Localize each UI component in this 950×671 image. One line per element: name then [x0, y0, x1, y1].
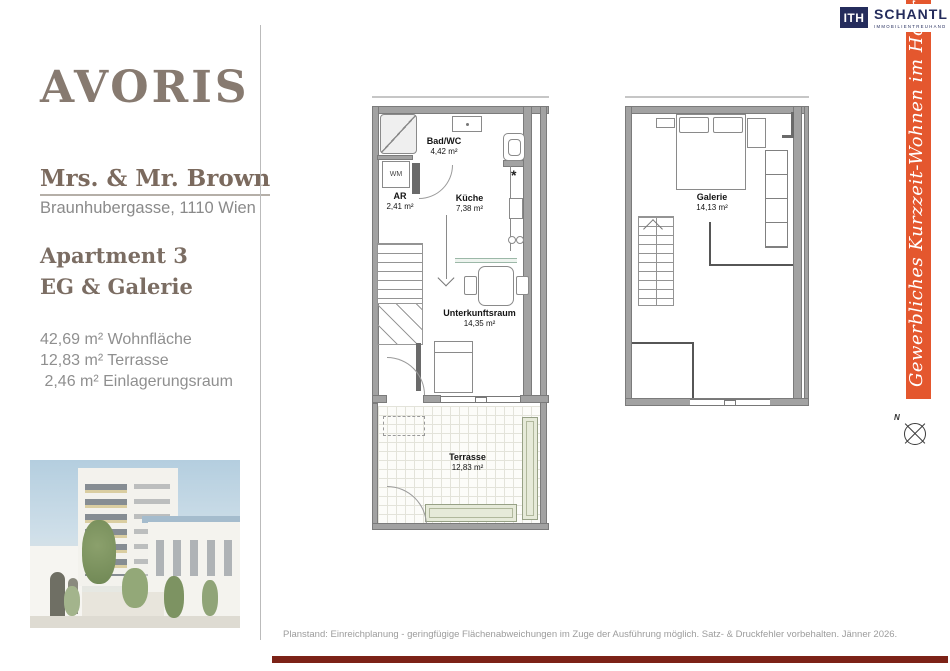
planter — [425, 504, 517, 522]
nightstand-icon — [656, 118, 675, 128]
partner-company: SCHANTL — [874, 7, 948, 21]
north-label: N — [894, 413, 900, 422]
building-rendering-image — [30, 460, 240, 628]
avoris-logo: AVORIS — [40, 62, 250, 113]
area-summary: 42,69 m² Wohnfläche 12,83 m² Terrasse 2,… — [40, 329, 233, 392]
shower-icon — [380, 114, 417, 154]
level-title: EG & Galerie — [40, 274, 193, 299]
pillow-icon — [713, 117, 743, 133]
partner-tagline: IMMOBILIENTREUHAND — [874, 24, 948, 29]
corner-wall — [782, 112, 794, 138]
wall — [372, 96, 549, 98]
apartment-title: Apartment 3 — [40, 243, 188, 268]
room-label-unterkunftsraum: Unterkunftsraum 14,35 m² — [432, 308, 527, 329]
wall — [520, 395, 549, 403]
room-label-badwc: Bad/WC 4,42 m² — [415, 136, 473, 157]
chair-icon — [516, 276, 529, 295]
wall — [804, 106, 809, 406]
wall — [372, 523, 549, 530]
wall — [625, 96, 809, 98]
void-outline — [632, 342, 694, 398]
storage-outline — [383, 416, 425, 436]
tap-symbol-icon: * — [511, 167, 516, 183]
area-wohnflaeche: 42,69 m² Wohnfläche — [40, 329, 233, 350]
address: Braunhubergasse, 1110 Wien — [40, 199, 270, 218]
room-label-terrasse: Terrasse 12,83 m² — [430, 452, 505, 473]
area-terrasse: 12,83 m² Terrasse — [40, 350, 233, 371]
wardrobe-icon — [765, 150, 788, 248]
banner-text: Gewerbliches Kurzzeit-Wohnen im Hoftrakt… — [906, 0, 931, 399]
footer-bar — [272, 656, 948, 663]
burner-icon — [508, 236, 516, 244]
room-label-kueche: Küche 7,38 m² — [442, 193, 497, 214]
glass-partition — [455, 258, 517, 263]
void-edge — [709, 222, 711, 266]
nightstand-icon — [747, 118, 766, 148]
partner-logo: ITH SCHANTL IMMOBILIENTREUHAND — [840, 4, 950, 32]
plan-sheet: AVORIS Mrs. & Mr. Brown Braunhubergasse,… — [0, 0, 950, 671]
stairs-eg — [377, 243, 423, 304]
wall — [372, 403, 378, 530]
void-edge — [709, 264, 793, 266]
galerie-window — [690, 399, 770, 406]
stove-icon — [509, 198, 523, 219]
disclaimer-text: Planstand: Einreichplanung - geringfügig… — [283, 629, 897, 640]
chair-icon — [464, 276, 477, 295]
room-label-galerie: Galerie 14,13 m² — [672, 192, 752, 213]
under-stair-storage — [377, 303, 423, 345]
marketing-banner: Gewerbliches Kurzzeit-Wohnen im Hoftrakt… — [906, 0, 931, 399]
wall — [423, 395, 441, 403]
wall — [377, 155, 413, 160]
sink-icon — [452, 116, 482, 132]
client-name: Mrs. & Mr. Brown — [40, 165, 270, 196]
wall — [503, 160, 524, 167]
area-einlagerungsraum: 2,46 m² Einlagerungsraum — [40, 371, 233, 392]
ith-monogram-icon: ITH — [840, 7, 868, 28]
burner-icon — [516, 236, 524, 244]
wall — [372, 395, 387, 403]
washing-machine-icon: WM — [382, 161, 410, 188]
toilet-icon — [503, 133, 525, 161]
column-divider — [260, 25, 261, 640]
sofa-bed-icon — [434, 341, 473, 393]
pillow-icon — [679, 117, 709, 133]
terrace-window — [441, 396, 520, 403]
wall — [540, 106, 547, 530]
wall — [793, 106, 802, 406]
stair-arrow-icon — [438, 270, 455, 287]
table-icon — [478, 266, 514, 306]
room-label-ar: AR 2,41 m² — [374, 191, 426, 212]
planter — [522, 417, 538, 520]
wall — [625, 106, 632, 406]
